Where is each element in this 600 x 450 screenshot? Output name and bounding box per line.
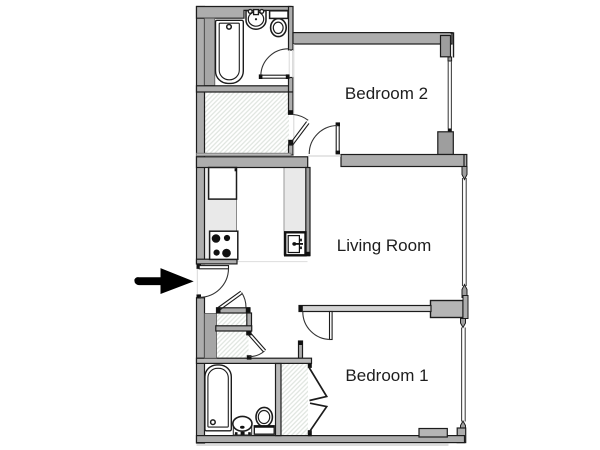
- svg-text:Bedroom 2: Bedroom 2: [345, 84, 428, 103]
- svg-text:Bedroom 1: Bedroom 1: [345, 366, 428, 385]
- svg-text:Living Room: Living Room: [337, 236, 432, 255]
